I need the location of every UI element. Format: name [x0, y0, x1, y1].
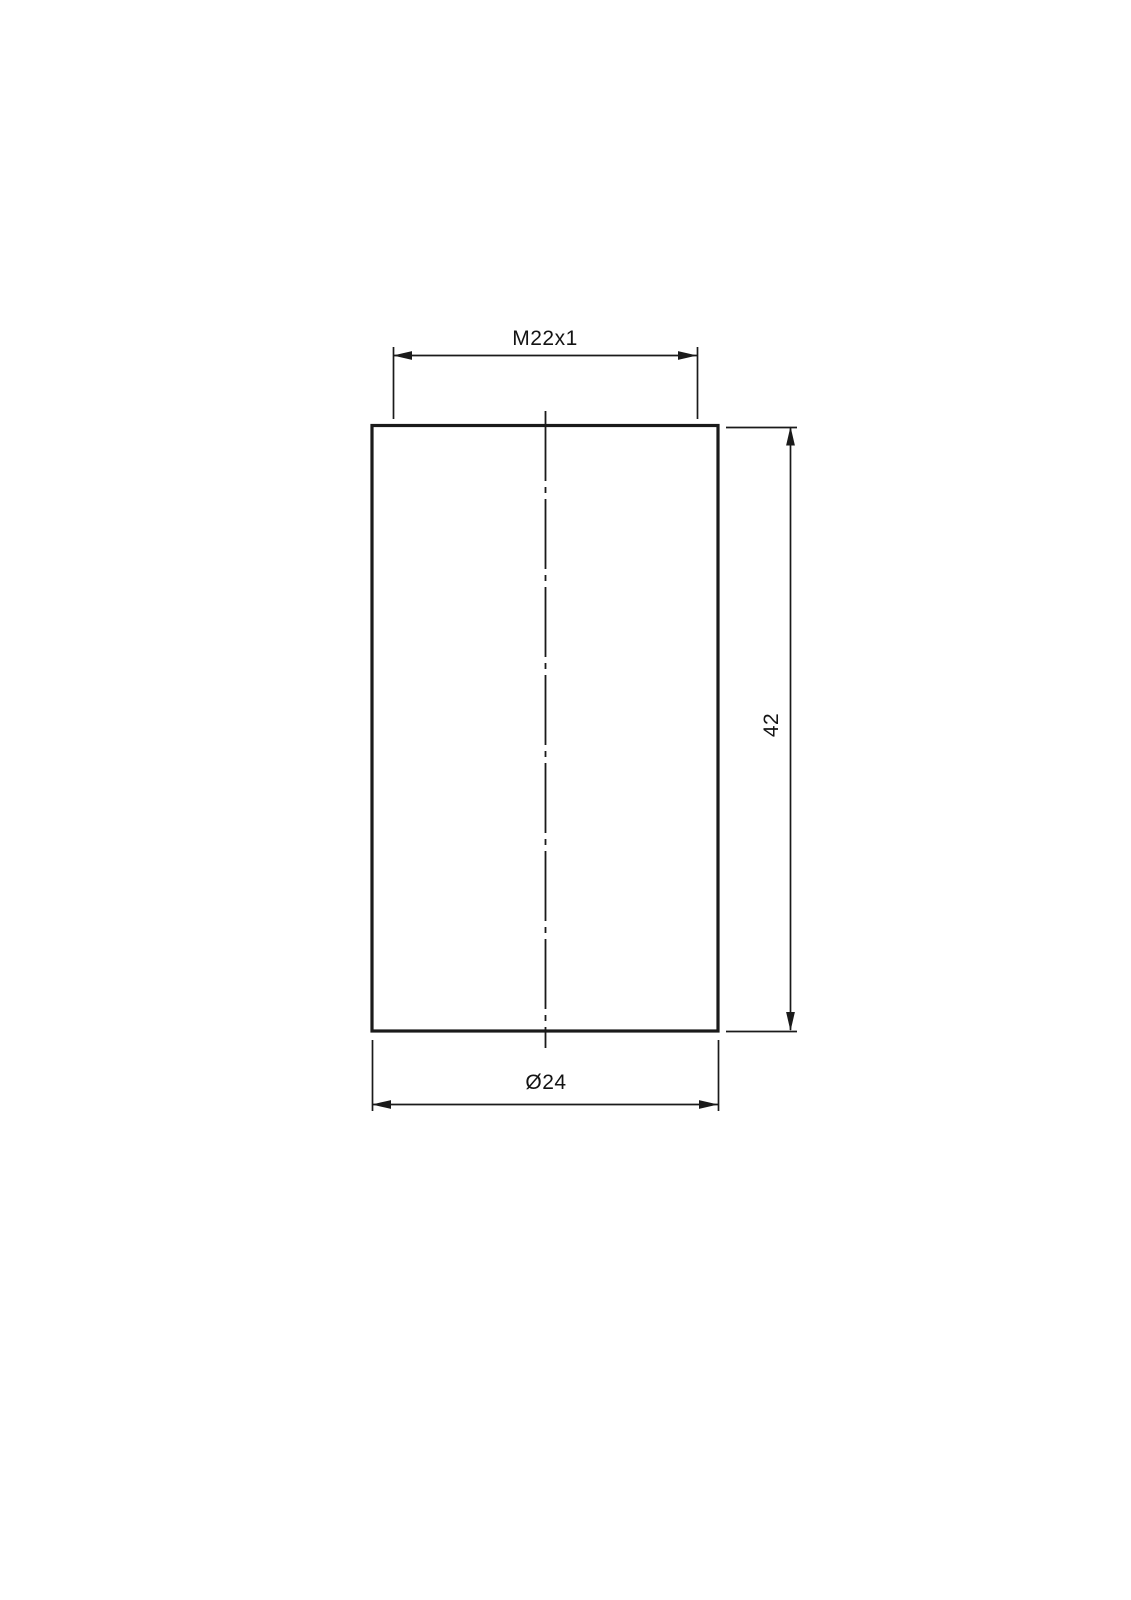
height-arrow-down-icon	[786, 1012, 795, 1031]
height-dimension-label: 42	[760, 713, 784, 737]
diameter-arrow-left-icon	[372, 1100, 391, 1109]
thread-dimension-group	[394, 347, 698, 419]
diameter-arrow-right-icon	[699, 1100, 718, 1109]
technical-drawing	[0, 0, 1131, 1600]
diameter-dimension-label: Ø24	[525, 1071, 566, 1095]
drawing-page: M22x1 42 Ø24	[0, 0, 1131, 1600]
height-arrow-up-icon	[786, 427, 795, 446]
arrowheads-group	[372, 351, 795, 1109]
thread-arrow-left-icon	[393, 351, 412, 360]
thread-arrow-right-icon	[678, 351, 697, 360]
thread-dimension-label: M22x1	[512, 327, 578, 351]
